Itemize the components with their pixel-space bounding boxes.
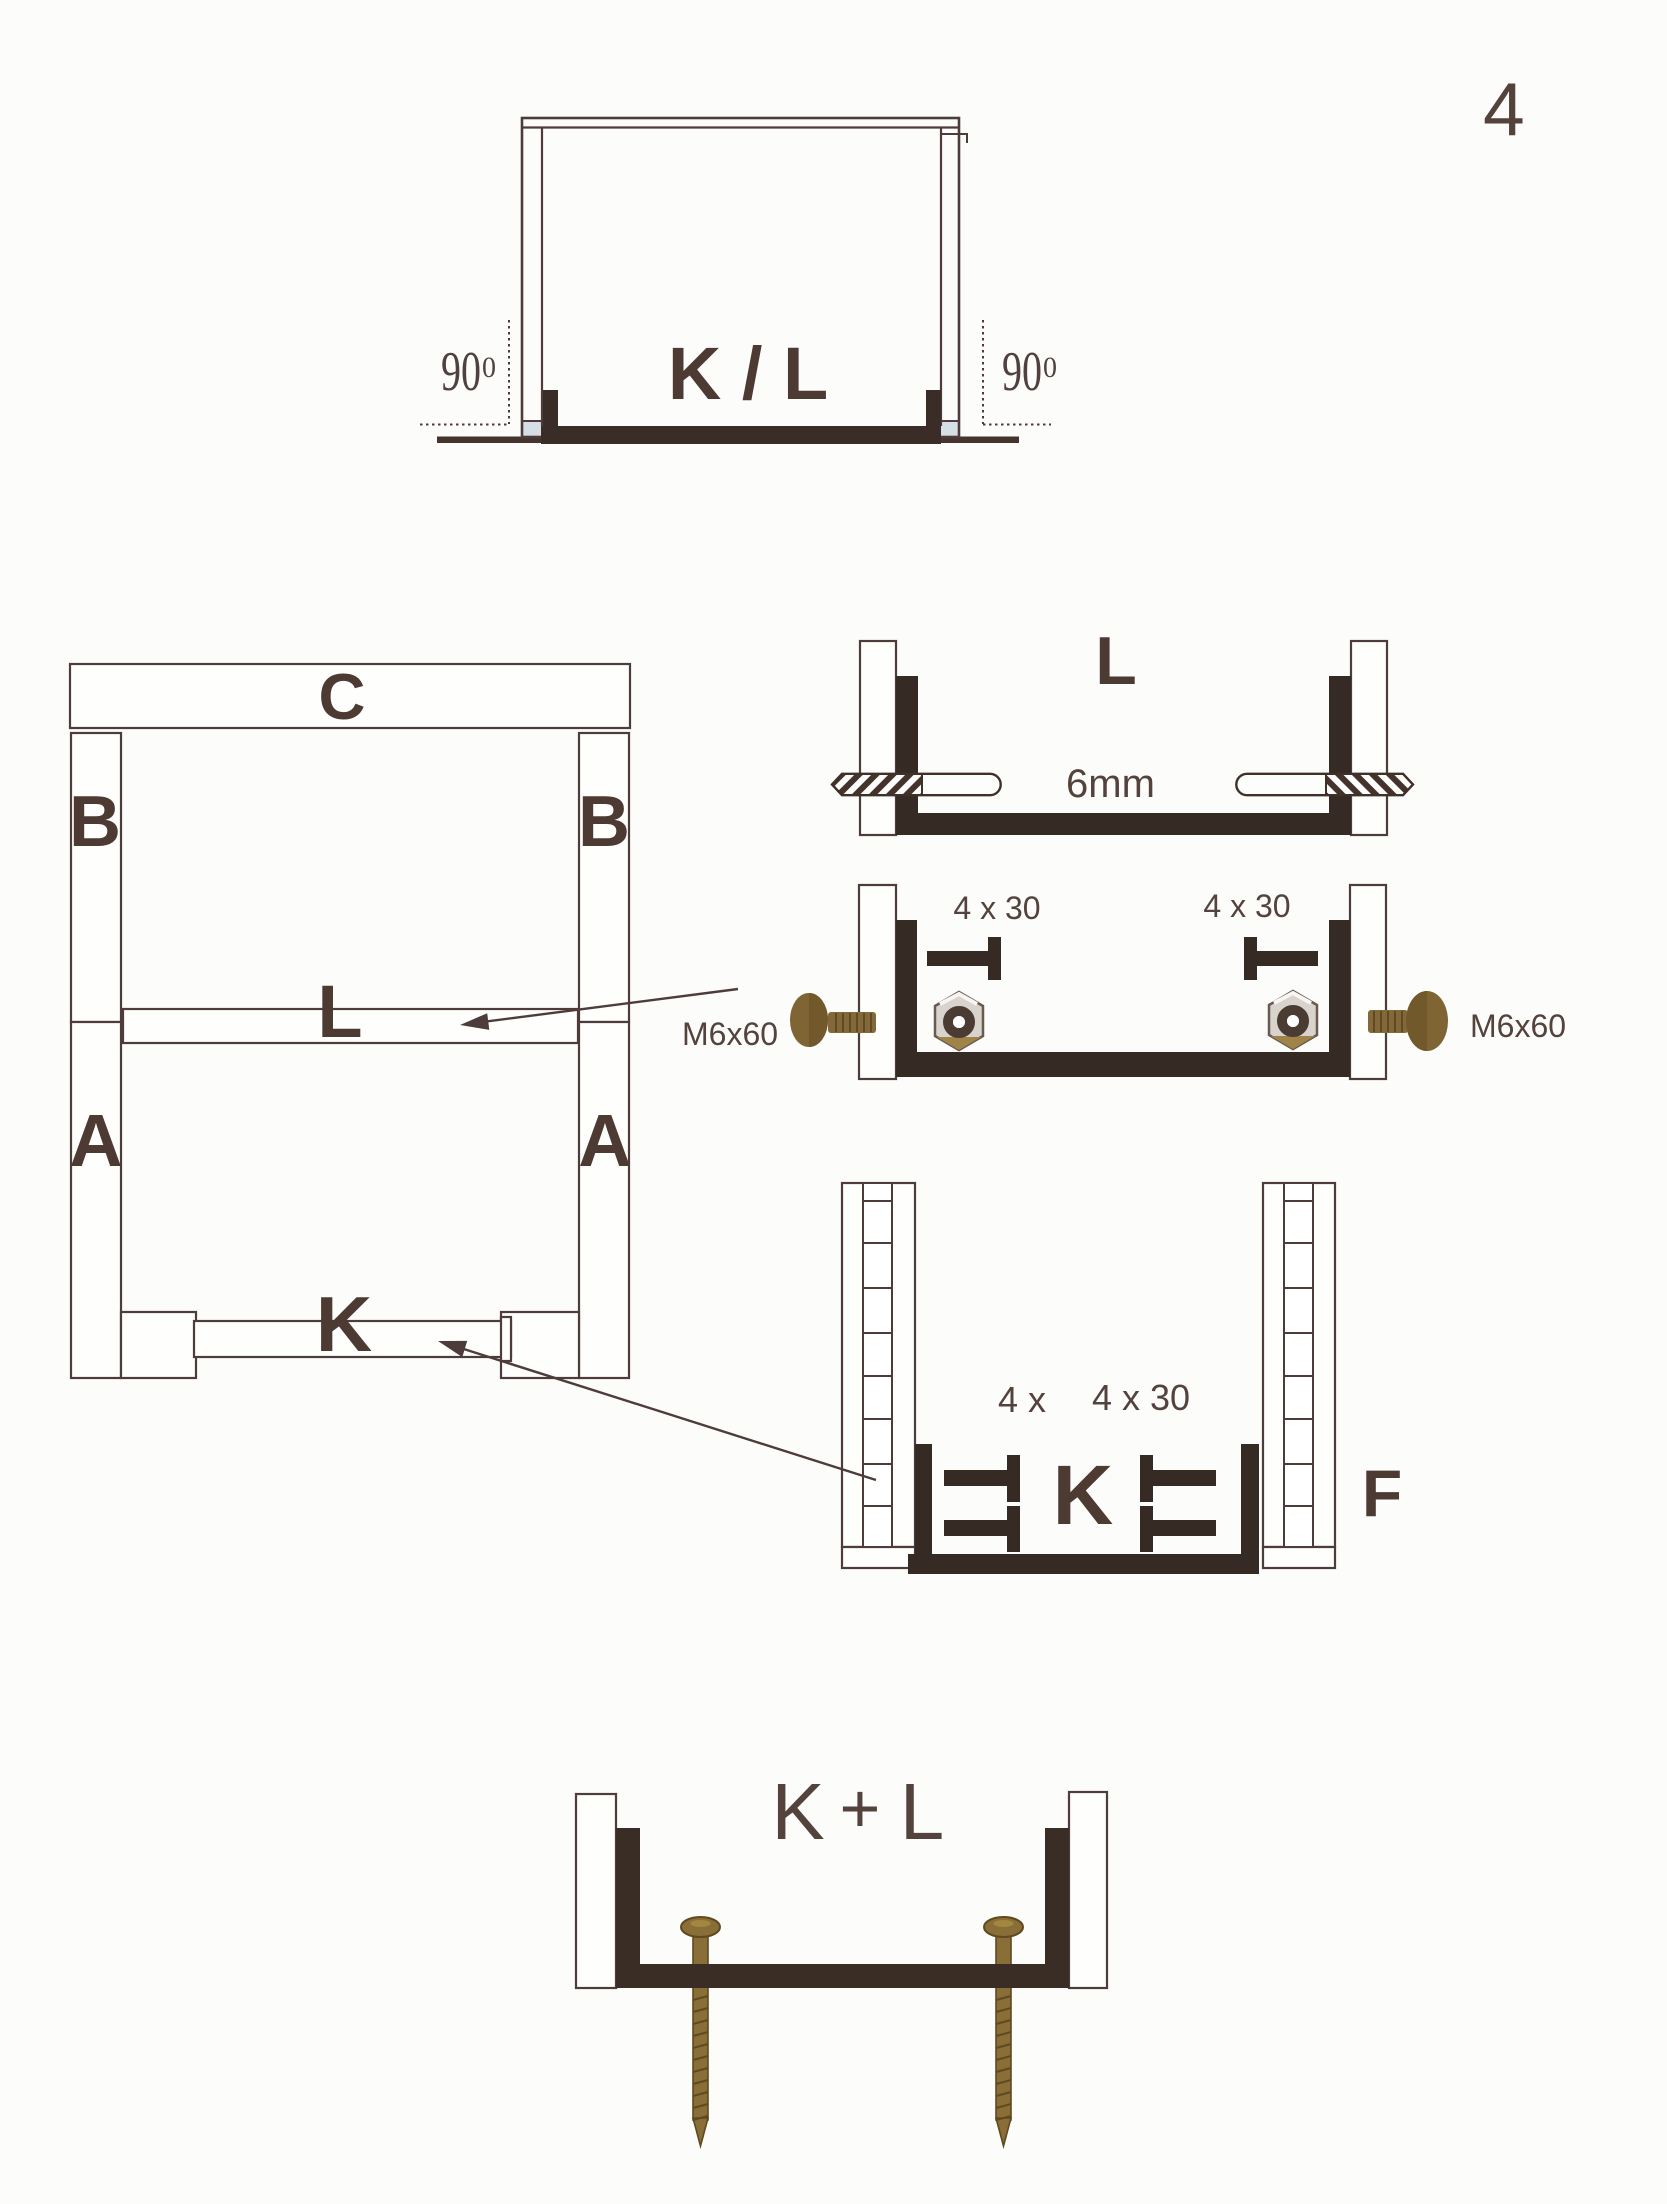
svg-text:4: 4 — [1483, 67, 1525, 151]
svg-text:F: F — [1362, 1456, 1402, 1530]
svg-text:4 x 30: 4 x 30 — [1092, 1377, 1190, 1418]
svg-text:A: A — [69, 1099, 122, 1182]
svg-text:A: A — [578, 1099, 631, 1182]
svg-text:L: L — [317, 970, 362, 1053]
svg-text:4 x 30: 4 x 30 — [1203, 888, 1290, 924]
svg-text:K / L: K / L — [668, 332, 828, 415]
svg-text:90: 90 — [1002, 341, 1042, 403]
svg-text:K: K — [771, 1767, 824, 1856]
svg-text:B: B — [578, 782, 630, 862]
svg-text:B: B — [69, 782, 121, 862]
svg-text:6mm: 6mm — [1066, 762, 1155, 806]
svg-text:0: 0 — [1043, 351, 1057, 384]
svg-text:4 x 30: 4 x 30 — [953, 890, 1040, 926]
svg-text:L: L — [900, 1767, 945, 1856]
svg-text:4 x: 4 x — [998, 1379, 1046, 1420]
svg-text:M6x60: M6x60 — [1470, 1008, 1566, 1044]
svg-text:+: + — [840, 1769, 881, 1847]
svg-text:90: 90 — [441, 341, 481, 403]
svg-text:M6x60: M6x60 — [682, 1016, 778, 1052]
svg-text:0: 0 — [482, 351, 496, 384]
svg-text:C: C — [319, 660, 366, 733]
svg-text:K: K — [316, 1280, 372, 1368]
svg-text:K: K — [1053, 1448, 1114, 1542]
svg-text:L: L — [1095, 623, 1137, 699]
